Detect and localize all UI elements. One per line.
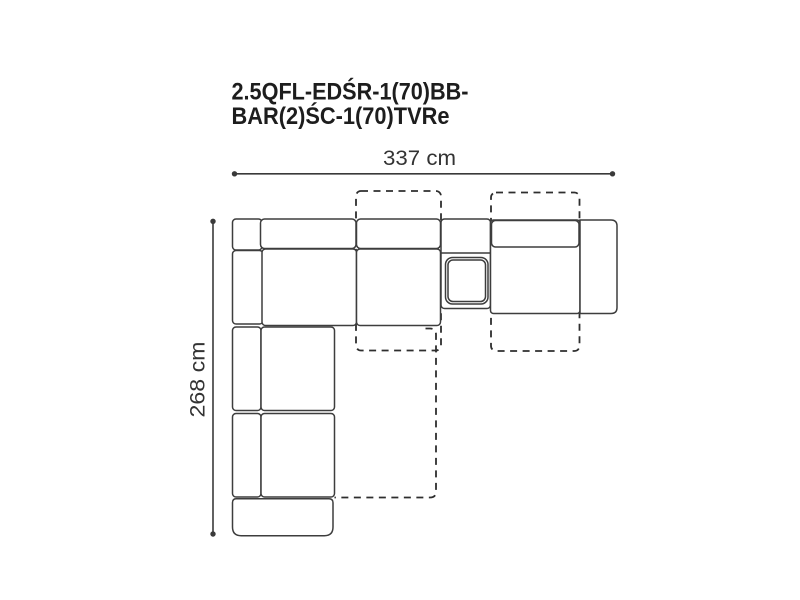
svg-text:BAR(2)ŚC-1(70)TVRe: BAR(2)ŚC-1(70)TVRe bbox=[232, 102, 450, 130]
svg-text:268 cm: 268 cm bbox=[186, 342, 210, 418]
svg-text:2.5QFL-EDŚR-1(70)BB-: 2.5QFL-EDŚR-1(70)BB- bbox=[232, 78, 469, 106]
svg-text:337 cm: 337 cm bbox=[383, 146, 456, 170]
